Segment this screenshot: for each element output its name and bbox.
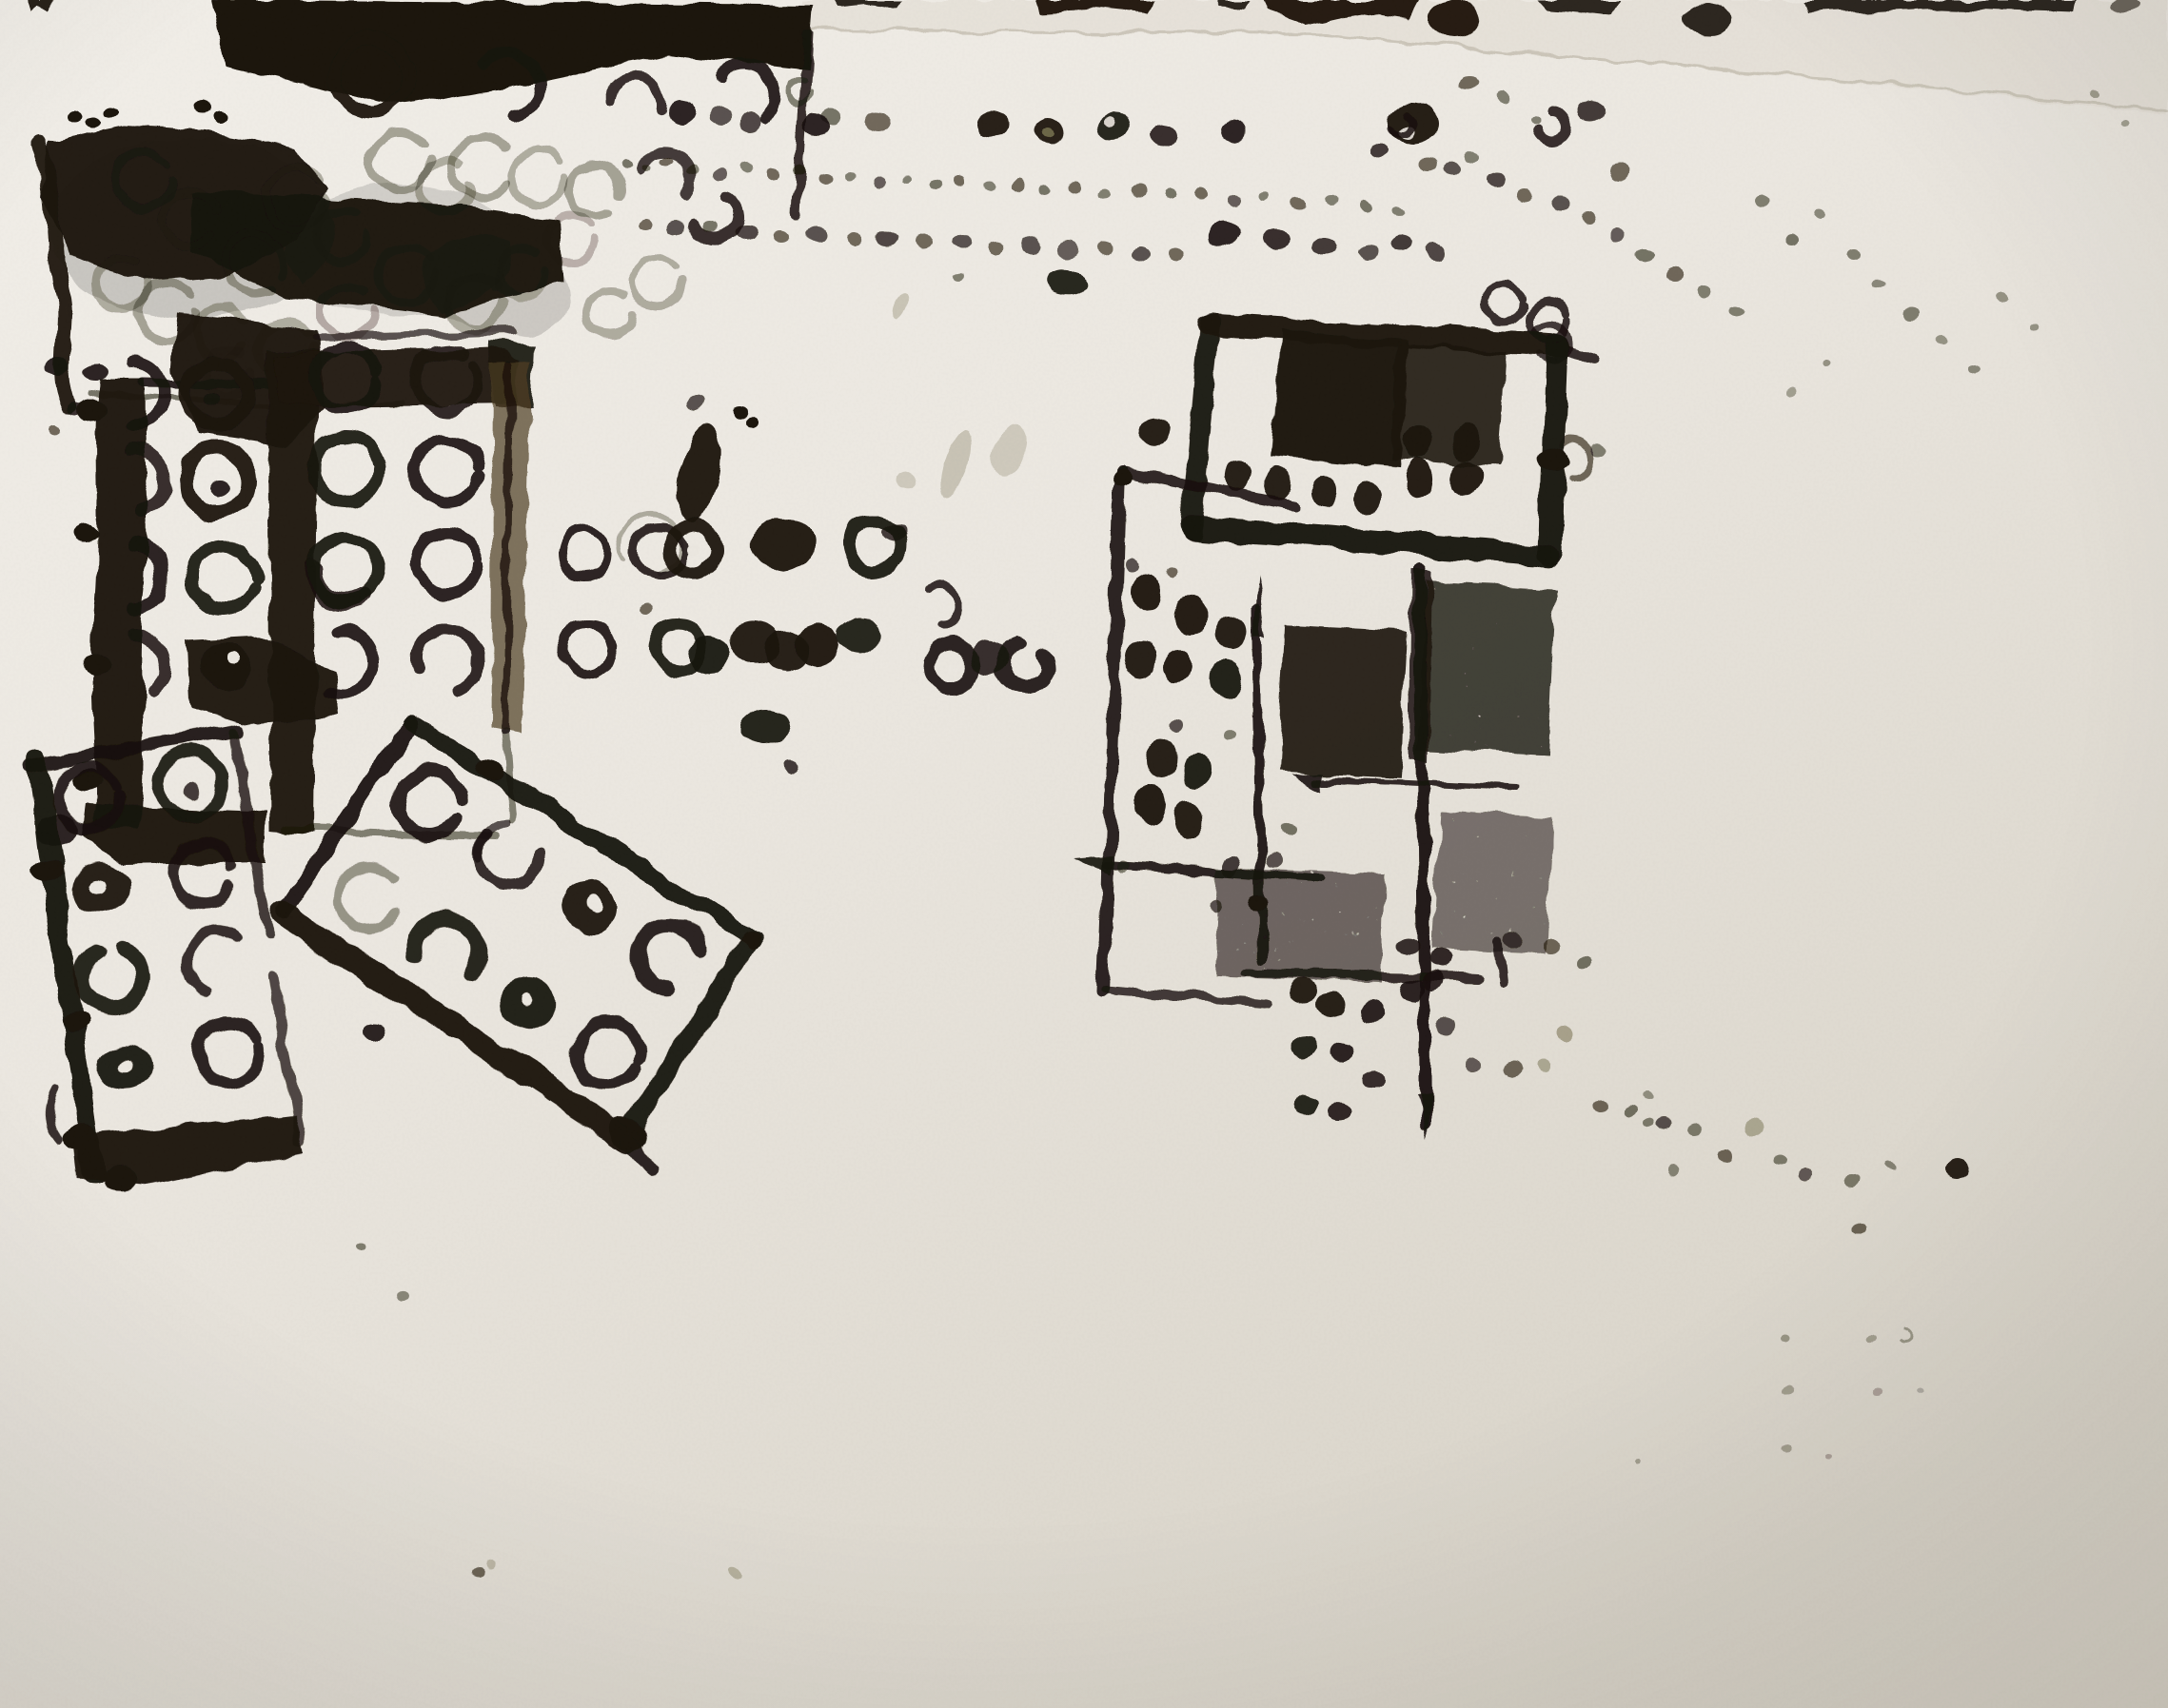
photo-grain [0, 0, 2168, 1708]
artwork-canvas [0, 0, 2168, 1708]
photographed-lego-print-artwork [0, 0, 2168, 1708]
